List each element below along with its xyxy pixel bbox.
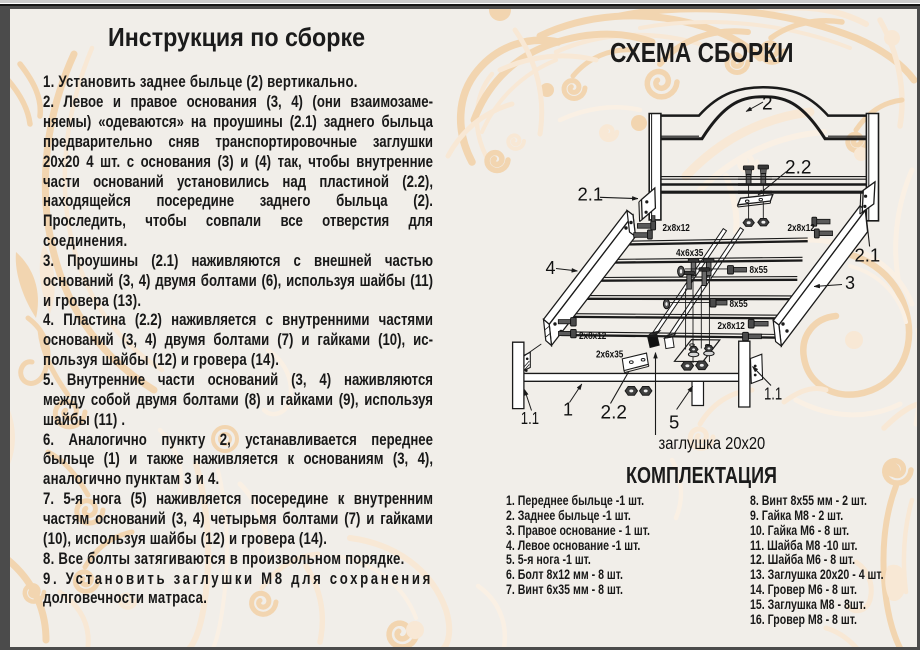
svg-text:4х6х35: 4х6х35 <box>676 246 703 258</box>
svg-text:2х8х12: 2х8х12 <box>788 221 815 233</box>
svg-text:8х55: 8х55 <box>750 263 768 275</box>
svg-text:2х6х35: 2х6х35 <box>596 347 623 359</box>
svg-text:5: 5 <box>669 412 679 433</box>
svg-text:4: 4 <box>546 258 556 278</box>
svg-text:1: 1 <box>563 400 573 420</box>
svg-text:2.2: 2.2 <box>601 403 627 424</box>
svg-text:1.1: 1.1 <box>521 409 539 428</box>
svg-text:2.2: 2.2 <box>785 158 811 179</box>
svg-text:8х55: 8х55 <box>730 297 748 309</box>
svg-text:3: 3 <box>845 273 855 293</box>
svg-text:2.1: 2.1 <box>578 184 604 205</box>
svg-text:2х8х12: 2х8х12 <box>579 329 606 341</box>
svg-text:2х8х12: 2х8х12 <box>663 221 690 233</box>
svg-text:заглушка 20х20: заглушка 20х20 <box>659 434 766 453</box>
svg-text:2х8х12: 2х8х12 <box>718 319 745 331</box>
svg-text:1.1: 1.1 <box>764 385 782 404</box>
svg-text:2.1: 2.1 <box>855 245 881 266</box>
svg-text:2: 2 <box>762 94 773 115</box>
